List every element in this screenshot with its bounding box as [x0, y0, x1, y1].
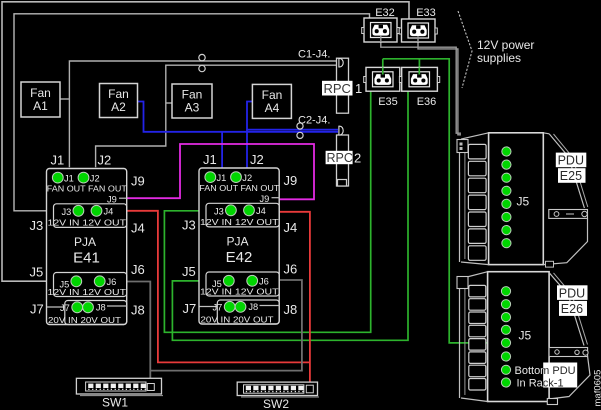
- svg-text:J4: J4: [131, 221, 145, 236]
- svg-text:J8: J8: [248, 302, 258, 312]
- svg-text:FAN OUT FAN OUT: FAN OUT FAN OUT: [47, 185, 127, 194]
- svg-text:RPC: RPC: [327, 151, 353, 165]
- svg-text:E33: E33: [416, 7, 436, 19]
- svg-text:E36: E36: [417, 96, 437, 108]
- svg-text:J4: J4: [256, 206, 266, 216]
- svg-text:20V IN 20V OUT: 20V IN 20V OUT: [48, 316, 121, 325]
- svg-text:2: 2: [354, 151, 361, 166]
- svg-text:A3: A3: [185, 101, 200, 115]
- svg-text:J5: J5: [519, 329, 532, 343]
- svg-text:A2: A2: [111, 100, 126, 114]
- svg-text:C2-J4.: C2-J4.: [298, 115, 330, 127]
- svg-text:J6: J6: [284, 262, 298, 277]
- svg-text:J6: J6: [131, 262, 145, 277]
- svg-text:12V IN 12V OUT: 12V IN 12V OUT: [200, 218, 279, 227]
- svg-text:12V IN 12V OUT: 12V IN 12V OUT: [200, 287, 279, 296]
- svg-text:E32: E32: [375, 7, 395, 19]
- svg-text:PDU: PDU: [559, 286, 585, 300]
- svg-text:maf0605: maf0605: [593, 370, 601, 407]
- svg-text:J6: J6: [107, 277, 117, 287]
- svg-text:12V IN 12V OUT: 12V IN 12V OUT: [48, 288, 127, 297]
- svg-text:J7: J7: [183, 301, 197, 316]
- svg-text:J2: J2: [98, 153, 112, 168]
- svg-text:12V IN 12V OUT: 12V IN 12V OUT: [48, 219, 127, 228]
- svg-text:J1: J1: [64, 174, 74, 184]
- svg-text:J3: J3: [214, 207, 224, 217]
- svg-text:J3: J3: [30, 218, 44, 233]
- svg-text:J5: J5: [517, 195, 530, 209]
- svg-text:12V power: 12V power: [477, 38, 534, 52]
- svg-text:J5: J5: [182, 264, 196, 279]
- svg-text:J9: J9: [107, 195, 117, 205]
- svg-text:E25: E25: [560, 169, 582, 183]
- svg-text:J8: J8: [284, 302, 298, 317]
- svg-text:C1-J4.: C1-J4.: [298, 49, 330, 61]
- svg-text:1: 1: [355, 81, 362, 96]
- svg-text:J2: J2: [90, 174, 100, 184]
- svg-text:J2: J2: [242, 173, 252, 183]
- svg-text:J3: J3: [62, 207, 72, 217]
- svg-text:J9: J9: [260, 194, 270, 204]
- svg-text:J4: J4: [104, 207, 114, 217]
- svg-text:A1: A1: [33, 99, 48, 113]
- svg-text:J7: J7: [30, 302, 44, 317]
- svg-text:E26: E26: [561, 302, 583, 316]
- svg-text:PDU: PDU: [558, 154, 584, 168]
- svg-text:SW2: SW2: [263, 397, 289, 410]
- svg-text:Fan: Fan: [30, 86, 51, 100]
- svg-text:J1: J1: [51, 153, 65, 168]
- svg-text:J9: J9: [131, 174, 145, 189]
- svg-text:FAN OUT FAN OUT: FAN OUT FAN OUT: [199, 184, 279, 193]
- svg-text:E35: E35: [378, 96, 398, 108]
- svg-text:PJA: PJA: [226, 235, 248, 249]
- svg-text:J5: J5: [30, 265, 44, 280]
- svg-text:J2: J2: [250, 152, 264, 167]
- svg-text:J9: J9: [284, 173, 298, 188]
- svg-text:20V IN 20V OUT: 20V IN 20V OUT: [201, 315, 274, 324]
- svg-text:Fan: Fan: [108, 87, 129, 101]
- svg-text:Fan: Fan: [182, 88, 203, 102]
- svg-text:supplies: supplies: [477, 51, 521, 65]
- svg-text:E42: E42: [226, 249, 253, 266]
- svg-text:E41: E41: [73, 250, 100, 267]
- svg-text:J7: J7: [60, 303, 70, 313]
- svg-text:RPC: RPC: [324, 81, 351, 96]
- svg-text:J8: J8: [131, 303, 145, 318]
- svg-text:J3: J3: [182, 218, 196, 233]
- svg-text:Fan: Fan: [262, 88, 283, 102]
- svg-text:J7: J7: [213, 303, 223, 313]
- svg-text:A4: A4: [265, 101, 280, 115]
- svg-text:PJA: PJA: [74, 235, 96, 249]
- svg-text:J4: J4: [284, 220, 298, 235]
- svg-text:J1: J1: [217, 173, 227, 183]
- svg-text:J6: J6: [259, 277, 269, 287]
- svg-text:J1: J1: [203, 152, 217, 167]
- svg-text:SW1: SW1: [102, 396, 128, 410]
- svg-text:J8: J8: [96, 303, 106, 313]
